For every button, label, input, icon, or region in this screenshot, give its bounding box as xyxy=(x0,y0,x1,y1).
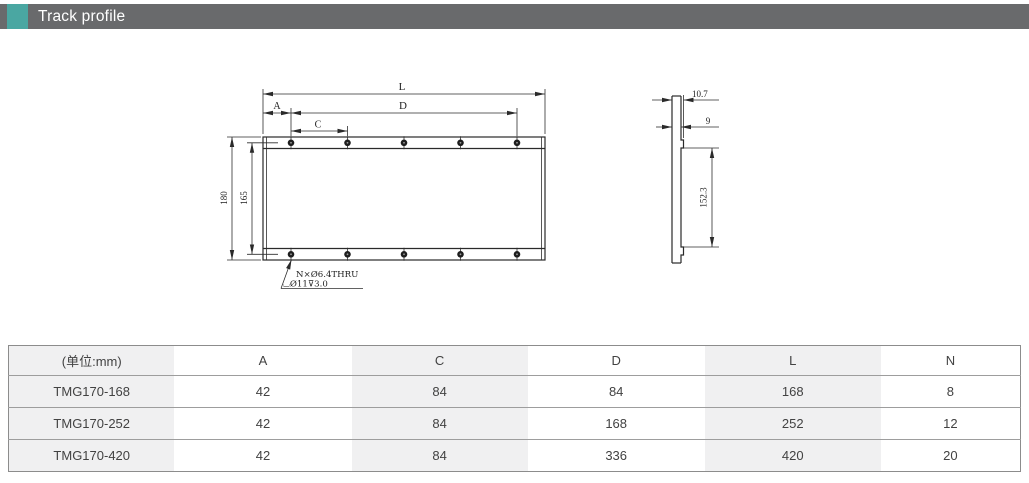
dim-label-L: L xyxy=(399,81,406,93)
dim-label-152-3: 152.3 xyxy=(699,187,709,208)
dim-label-10-7: 10.7 xyxy=(692,89,708,99)
mounting-holes-bottom xyxy=(288,248,521,261)
cell-value-N: 12 xyxy=(881,408,1021,440)
cell-value-L: 252 xyxy=(705,408,881,440)
cell-value-N: 20 xyxy=(881,440,1021,472)
cell-value-D: 336 xyxy=(528,440,705,472)
technical-drawing: L A D C 180 165 N×Ø6.4THRU xyxy=(0,0,1029,335)
side-view: 10.7 9 152.3 xyxy=(652,89,719,263)
dim-label-9: 9 xyxy=(706,116,711,126)
hole-note-line1: N×Ø6.4THRU xyxy=(296,269,358,280)
table-row: TMG170-420 42 84 336 420 20 xyxy=(9,440,1021,472)
col-header-N: N xyxy=(881,346,1021,376)
dim-label-C: C xyxy=(315,120,322,131)
table-row: TMG170-252 42 84 168 252 12 xyxy=(9,408,1021,440)
cell-value-N: 8 xyxy=(881,376,1021,408)
cell-value-C: 84 xyxy=(352,376,528,408)
cell-value-A: 42 xyxy=(174,376,351,408)
col-header-D: D xyxy=(528,346,705,376)
col-header-unit: (单位:mm) xyxy=(9,346,175,376)
dim-label-165: 165 xyxy=(239,191,249,205)
dim-label-D: D xyxy=(399,100,407,112)
table-row: TMG170-168 42 84 84 168 8 xyxy=(9,376,1021,408)
cell-value-L: 420 xyxy=(705,440,881,472)
hole-note-line2: ⌴Ø11⊽3.0 xyxy=(283,279,328,290)
spec-table: (单位:mm) A C D L N TMG170-168 42 84 84 16… xyxy=(8,345,1021,472)
table-header-row: (单位:mm) A C D L N xyxy=(9,346,1021,376)
cell-value-L: 168 xyxy=(705,376,881,408)
cell-value-D: 84 xyxy=(528,376,705,408)
cell-model: TMG170-168 xyxy=(9,376,175,408)
cell-value-D: 168 xyxy=(528,408,705,440)
cell-model: TMG170-252 xyxy=(9,408,175,440)
dim-label-A: A xyxy=(273,101,281,112)
col-header-A: A xyxy=(174,346,351,376)
cell-value-C: 84 xyxy=(352,408,528,440)
cell-value-A: 42 xyxy=(174,408,351,440)
cell-value-C: 84 xyxy=(352,440,528,472)
page: Track profile xyxy=(0,0,1029,483)
mounting-holes-top xyxy=(288,136,521,149)
col-header-L: L xyxy=(705,346,881,376)
dim-label-180: 180 xyxy=(219,191,229,205)
front-view: L A D C 180 165 N×Ø6.4THRU xyxy=(219,81,545,290)
cell-value-A: 42 xyxy=(174,440,351,472)
col-header-C: C xyxy=(352,346,528,376)
cell-model: TMG170-420 xyxy=(9,440,175,472)
